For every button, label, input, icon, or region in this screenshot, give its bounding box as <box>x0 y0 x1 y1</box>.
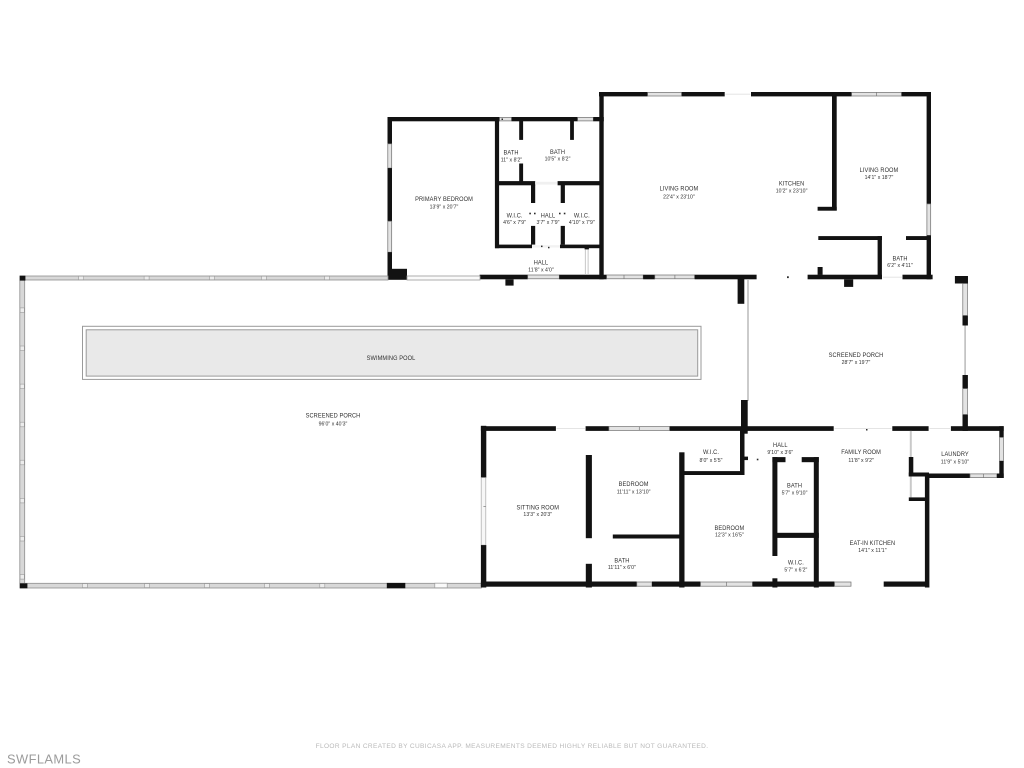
svg-text:SITTING ROOM: SITTING ROOM <box>517 505 560 511</box>
svg-text:28'7" x 19'7": 28'7" x 19'7" <box>842 360 871 366</box>
svg-text:13'9" x 20'7": 13'9" x 20'7" <box>430 204 459 210</box>
svg-text:BATH: BATH <box>787 483 802 489</box>
svg-text:10'2" x 23'10": 10'2" x 23'10" <box>776 188 808 194</box>
svg-text:SCREENED PORCH: SCREENED PORCH <box>829 353 884 359</box>
svg-text:SWIMMING POOL: SWIMMING POOL <box>367 356 416 362</box>
svg-text:22'4" x 23'10": 22'4" x 23'10" <box>663 194 695 200</box>
svg-text:11" x 8'2": 11" x 8'2" <box>501 157 523 163</box>
svg-text:3'7" x 7'9": 3'7" x 7'9" <box>537 220 560 226</box>
svg-text:5'7" x 6'2": 5'7" x 6'2" <box>784 567 807 573</box>
svg-text:13'3" x 20'3": 13'3" x 20'3" <box>523 512 552 518</box>
svg-text:11'9" x 5'10": 11'9" x 5'10" <box>941 459 969 465</box>
svg-text:BATH: BATH <box>550 150 565 156</box>
svg-text:SCREENED PORCH: SCREENED PORCH <box>306 413 361 419</box>
svg-text:BATH: BATH <box>892 256 907 262</box>
svg-text:BATH: BATH <box>503 150 518 156</box>
svg-text:11'8" x 4'0": 11'8" x 4'0" <box>528 267 553 273</box>
svg-text:BEDROOM: BEDROOM <box>619 482 649 488</box>
svg-text:4'10" x 7'9": 4'10" x 7'9" <box>569 220 595 226</box>
svg-text:11'11" x 13'10": 11'11" x 13'10" <box>617 489 651 495</box>
svg-text:PRIMARY BEDROOM: PRIMARY BEDROOM <box>415 197 473 203</box>
svg-text:EAT-IN KITCHEN: EAT-IN KITCHEN <box>850 541 896 547</box>
svg-text:SWFLAMLS: SWFLAMLS <box>7 752 81 767</box>
svg-text:LIVING ROOM: LIVING ROOM <box>660 186 699 192</box>
svg-text:HALL: HALL <box>773 443 788 449</box>
svg-text:6'2" x 4'11": 6'2" x 4'11" <box>887 263 912 269</box>
svg-text:KITCHEN: KITCHEN <box>779 181 804 187</box>
svg-text:8'0" x 5'5": 8'0" x 5'5" <box>700 458 723 464</box>
svg-text:14'1" x 18'7": 14'1" x 18'7" <box>865 175 894 181</box>
svg-text:FAMILY ROOM: FAMILY ROOM <box>841 450 881 456</box>
svg-text:LAUNDRY: LAUNDRY <box>941 452 969 458</box>
svg-text:BATH: BATH <box>614 558 629 564</box>
svg-text:W.I.C.: W.I.C. <box>788 560 804 566</box>
svg-text:5'7" x 9'10": 5'7" x 9'10" <box>782 490 808 496</box>
svg-text:96'0" x 40'3": 96'0" x 40'3" <box>319 421 348 427</box>
svg-text:W.I.C.: W.I.C. <box>703 450 719 456</box>
svg-text:BEDROOM: BEDROOM <box>714 526 744 532</box>
svg-text:11'8" x 9'2": 11'8" x 9'2" <box>848 458 873 464</box>
svg-text:11'11" x 6'0": 11'11" x 6'0" <box>608 565 636 571</box>
svg-text:14'1" x 11'1": 14'1" x 11'1" <box>858 548 886 554</box>
svg-text:HALL: HALL <box>534 260 549 266</box>
svg-text:FLOOR PLAN CREATED BY CUBICASA: FLOOR PLAN CREATED BY CUBICASA APP. MEAS… <box>316 743 709 750</box>
svg-text:10'5" x 8'2": 10'5" x 8'2" <box>545 156 571 162</box>
svg-text:9'10" x 3'6": 9'10" x 3'6" <box>767 450 793 456</box>
svg-text:12'3" x 16'5": 12'3" x 16'5" <box>715 532 744 538</box>
svg-text:4'6" x 7'9": 4'6" x 7'9" <box>503 220 526 226</box>
svg-text:LIVING ROOM: LIVING ROOM <box>860 168 899 174</box>
